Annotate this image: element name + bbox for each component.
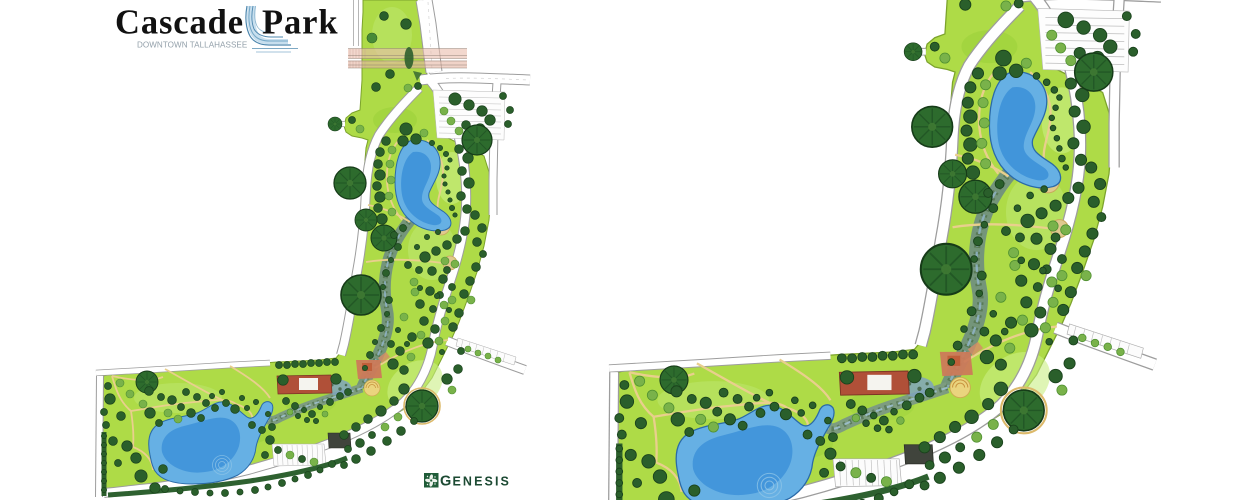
svg-text:Park: Park	[262, 4, 338, 42]
svg-text:G: G	[440, 474, 451, 490]
svg-text:DOWNTOWN TALLAHASSEE: DOWNTOWN TALLAHASSEE	[137, 41, 248, 50]
svg-text:ENESIS: ENESIS	[453, 475, 511, 489]
svg-text:Cascade: Cascade	[115, 4, 244, 42]
